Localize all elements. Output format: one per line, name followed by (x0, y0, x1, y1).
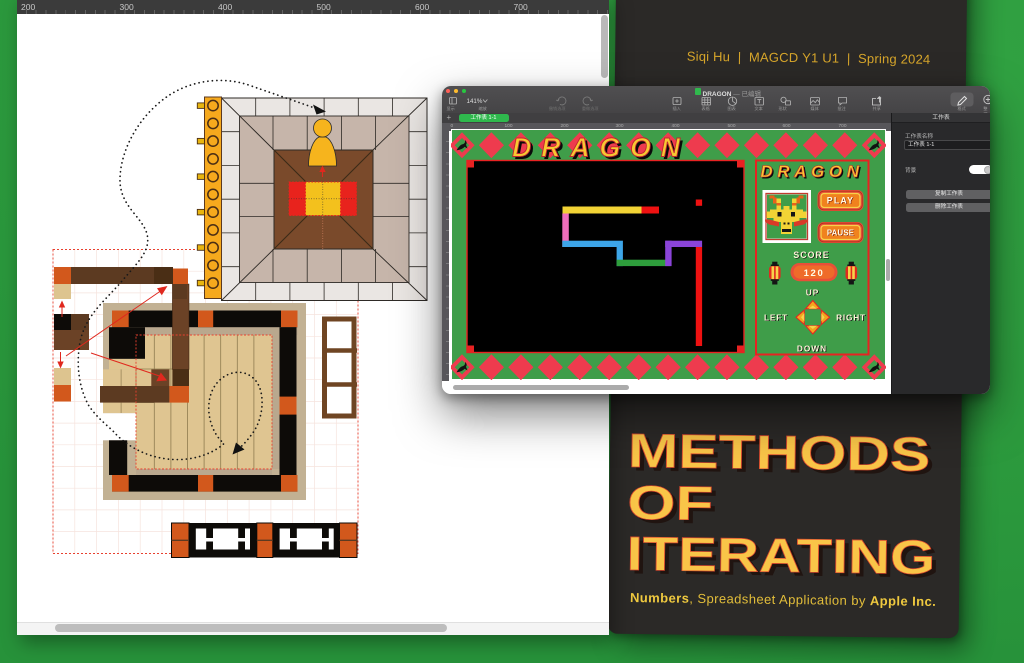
svg-text:PLAY: PLAY (826, 196, 853, 206)
svg-text:UP: UP (805, 288, 819, 298)
svg-text:120: 120 (803, 268, 824, 279)
svg-text:SCORE: SCORE (793, 250, 829, 260)
svg-text:DRAGON: DRAGON (512, 133, 690, 163)
svg-text:DRAGON: DRAGON (760, 162, 863, 181)
svg-text:PAUSE: PAUSE (826, 228, 853, 237)
svg-text:DOWN: DOWN (796, 344, 826, 354)
svg-text:LEFT: LEFT (764, 313, 788, 323)
svg-text:RIGHT: RIGHT (836, 313, 866, 323)
